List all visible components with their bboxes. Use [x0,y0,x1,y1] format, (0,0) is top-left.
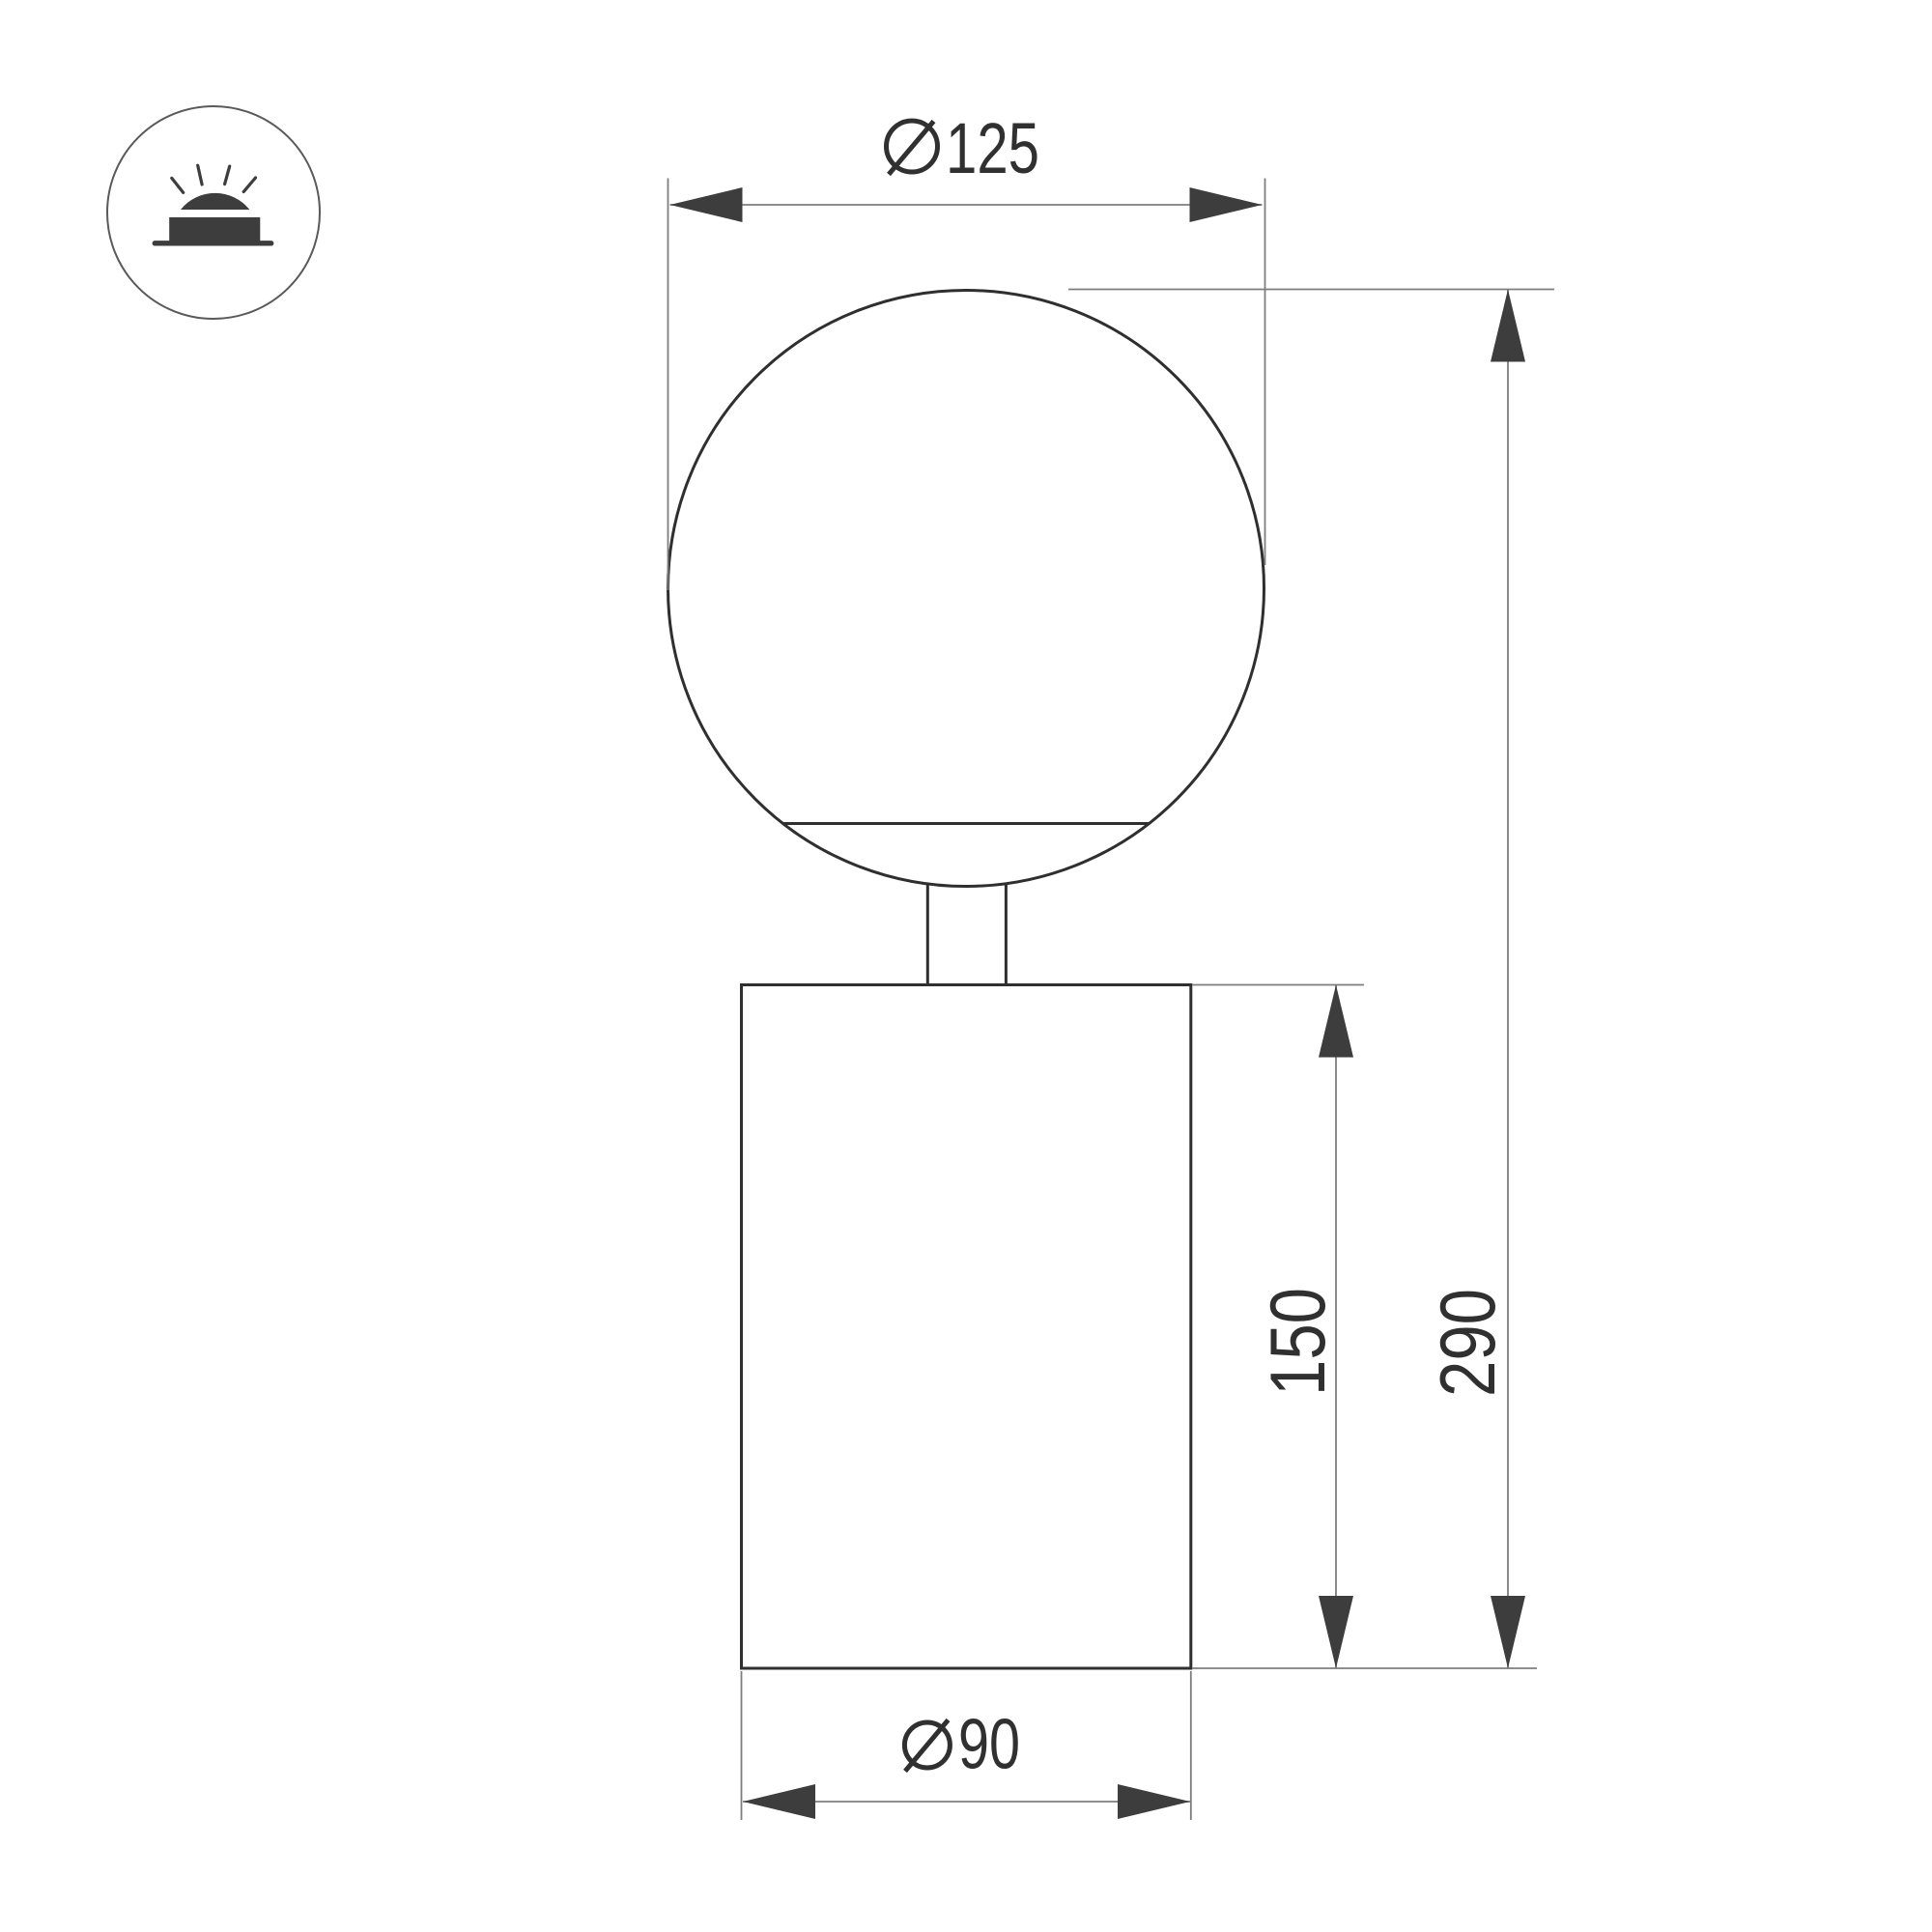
svg-text:150: 150 [1255,1288,1342,1396]
svg-text:90: 90 [958,1706,1020,1784]
svg-text:125: 125 [946,108,1039,188]
svg-text:290: 290 [1425,1289,1512,1397]
